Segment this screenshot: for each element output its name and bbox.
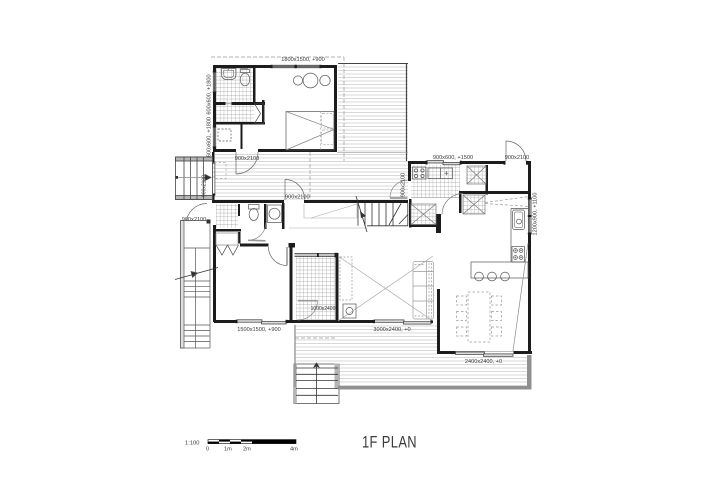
svg-text:1200x900, +1100: 1200x900, +1100 xyxy=(533,193,539,236)
svg-text:3000x2400, +0: 3000x2400, +0 xyxy=(373,327,410,333)
svg-text:600x600, +1800: 600x600, +1800 xyxy=(207,74,213,114)
svg-text:1500x1500, +900: 1500x1500, +900 xyxy=(237,327,280,333)
svg-text:1:100: 1:100 xyxy=(185,441,200,447)
svg-text:4m: 4m xyxy=(290,447,298,453)
svg-text:900x2100: 900x2100 xyxy=(285,195,310,201)
svg-text:2m: 2m xyxy=(243,447,251,453)
svg-text:900x2100: 900x2100 xyxy=(202,175,208,197)
svg-text:1000x2400: 1000x2400 xyxy=(311,306,336,312)
svg-text:2400x2400, +0: 2400x2400, +0 xyxy=(465,359,502,365)
svg-text:900x2100: 900x2100 xyxy=(182,217,207,223)
svg-text:1m: 1m xyxy=(224,447,232,453)
svg-text:900x2100: 900x2100 xyxy=(235,156,260,162)
svg-text:900x600, +1500: 900x600, +1500 xyxy=(433,155,473,161)
svg-text:900x2100: 900x2100 xyxy=(505,155,530,161)
svg-text:1800x1500, +900: 1800x1500, +900 xyxy=(281,57,324,63)
svg-text:600x600, +1800: 600x600, +1800 xyxy=(207,117,213,157)
svg-text:0: 0 xyxy=(206,447,209,453)
svg-text:900x2100: 900x2100 xyxy=(401,173,407,198)
svg-text:1F PLAN: 1F PLAN xyxy=(362,434,417,452)
